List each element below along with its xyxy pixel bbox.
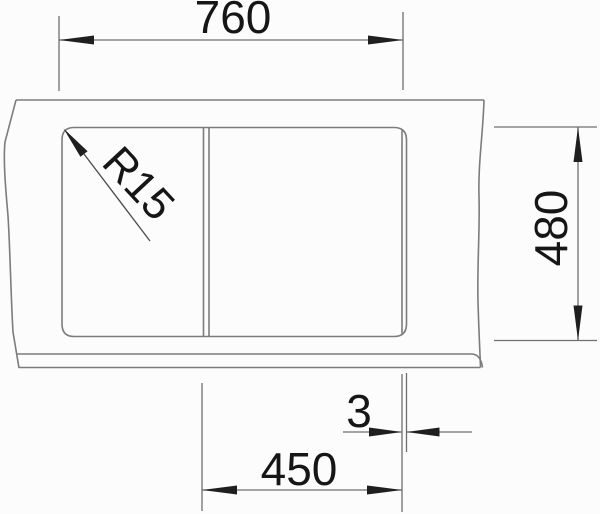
dim-edge-gap-label: 3: [329, 388, 389, 434]
sink-outer-rim: [4, 100, 484, 368]
rim-bottom-edge-upper: [18, 354, 483, 368]
countertop-cut-left: [4, 100, 19, 368]
dim-bowl-width-label: 450: [239, 446, 359, 492]
arrow-left-icon: [59, 36, 94, 45]
arrow-gap-left-icon: [407, 428, 440, 437]
arrow-bowl-right-icon: [367, 486, 402, 495]
arrow-down-icon: [574, 306, 583, 341]
arrow-right-icon: [368, 36, 403, 45]
dim-depth-label: 480: [528, 168, 574, 288]
sink-drawing-canvas: [0, 0, 600, 514]
dim-overall-width-label: 760: [173, 0, 293, 40]
arrow-up-icon: [574, 127, 583, 162]
countertop-cut-right: [478, 100, 484, 368]
sink-dimension-drawing: 760 480 3 450 R15: [0, 0, 600, 514]
arrow-bowl-left-icon: [202, 486, 237, 495]
